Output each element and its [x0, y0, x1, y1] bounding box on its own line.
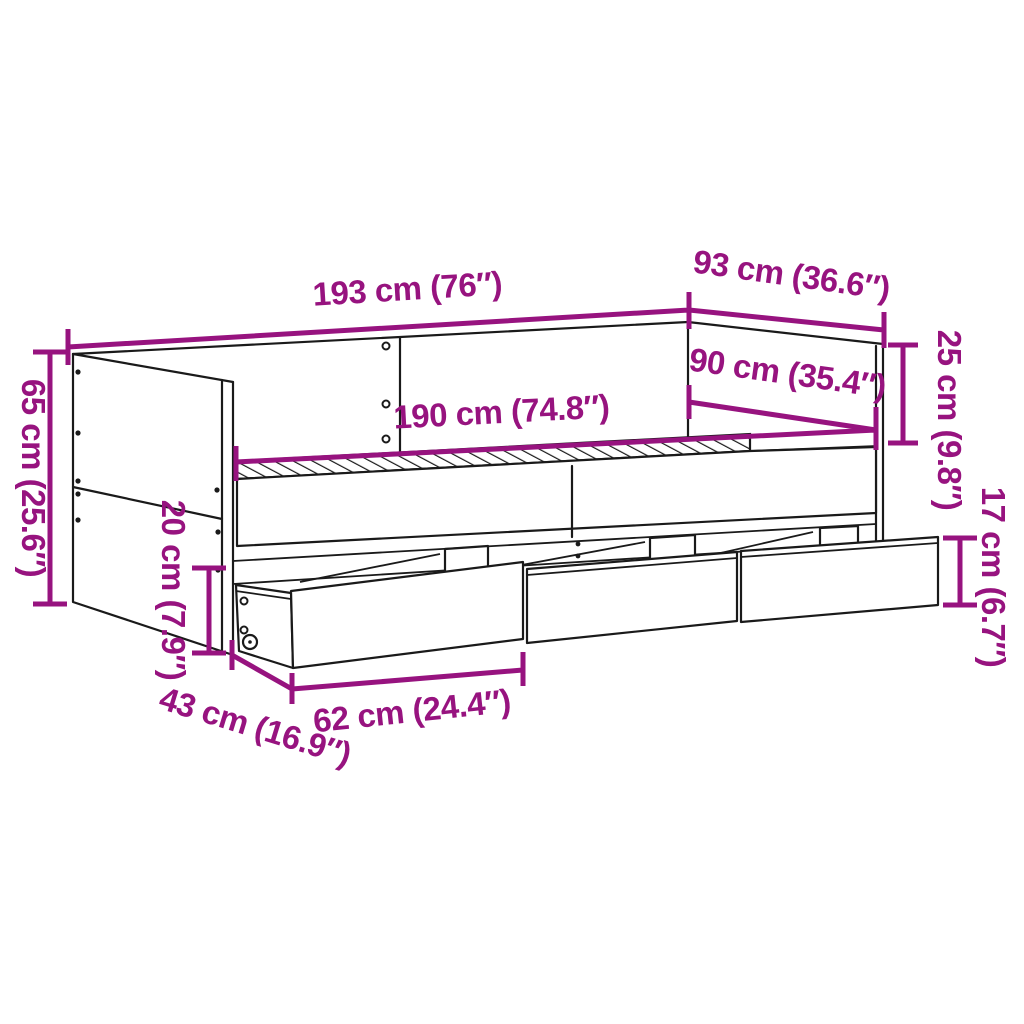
daybed-diagram-svg: 193 cm (76″) 93 cm (36.6″) 25 cm (9.8″) …	[0, 0, 1024, 1024]
dim-label-clearance-height: 20 cm (7.9″)	[155, 500, 192, 680]
dim-label-backrest-height: 25 cm (9.8″)	[931, 330, 968, 510]
dim-label-total-height: 65 cm (25.6″)	[15, 379, 52, 577]
dimension-diagram: 193 cm (76″) 93 cm (36.6″) 25 cm (9.8″) …	[0, 0, 1024, 1024]
dim-label-drawer-height: 17 cm (6.7″)	[975, 487, 1012, 667]
